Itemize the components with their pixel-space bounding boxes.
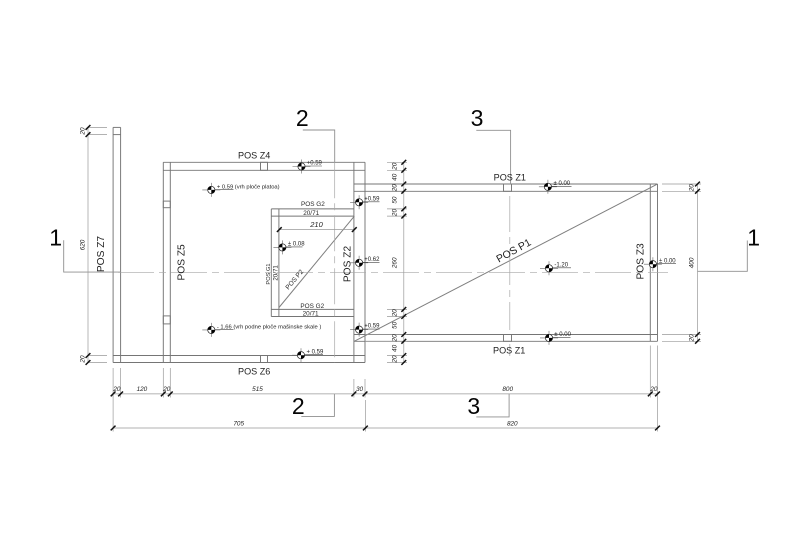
- svg-text:20: 20: [80, 355, 87, 364]
- svg-text:20: 20: [392, 209, 399, 218]
- svg-text:2: 2: [292, 393, 305, 419]
- svg-text:800: 800: [502, 386, 513, 393]
- svg-text:20: 20: [392, 334, 399, 343]
- svg-text:± 0.00: ± 0.00: [554, 181, 571, 187]
- svg-text:- 1.66 (vrh podne ploče mašins: - 1.66 (vrh podne ploče mašinske skale ): [217, 324, 321, 330]
- svg-text:± 0.08: ± 0.08: [288, 242, 305, 248]
- svg-text:20: 20: [162, 386, 171, 393]
- svg-text:POS G1: POS G1: [266, 263, 272, 284]
- svg-text:POS Z4: POS Z4: [238, 150, 270, 160]
- svg-text:50: 50: [392, 321, 399, 329]
- svg-text:POS G2: POS G2: [301, 201, 325, 208]
- svg-text:POS Z5: POS Z5: [177, 244, 188, 281]
- svg-text:POS Z7: POS Z7: [96, 236, 107, 273]
- svg-text:20: 20: [649, 386, 658, 393]
- svg-text:+0.59: +0.59: [307, 161, 323, 167]
- svg-text:210: 210: [309, 220, 323, 229]
- svg-text:POS Z2: POS Z2: [343, 246, 354, 283]
- svg-text:30: 30: [356, 386, 364, 393]
- svg-text:3: 3: [467, 393, 480, 419]
- svg-text:1: 1: [747, 225, 760, 251]
- svg-text:400: 400: [689, 257, 696, 268]
- svg-text:20: 20: [112, 386, 121, 393]
- svg-text:20/71: 20/71: [303, 210, 319, 217]
- svg-text:20: 20: [392, 162, 399, 171]
- svg-text:-1.20: -1.20: [554, 262, 568, 268]
- svg-text:515: 515: [252, 386, 263, 393]
- svg-text:40: 40: [392, 173, 399, 181]
- svg-text:+0.59: +0.59: [364, 196, 380, 202]
- svg-text:260: 260: [392, 257, 399, 269]
- svg-text:20/71: 20/71: [273, 265, 280, 281]
- svg-text:+0.59: +0.59: [364, 324, 380, 330]
- svg-text:20: 20: [392, 184, 399, 193]
- svg-text:+ 0.59 (vrh ploče platoa): + 0.59 (vrh ploče platoa): [217, 184, 280, 190]
- svg-text:POS Z1: POS Z1: [493, 345, 525, 355]
- svg-text:20: 20: [689, 334, 696, 343]
- svg-text:2: 2: [296, 105, 309, 131]
- svg-text:1: 1: [49, 224, 62, 250]
- svg-text:3: 3: [471, 105, 484, 131]
- svg-text:20: 20: [392, 309, 399, 318]
- svg-text:620: 620: [80, 239, 87, 250]
- svg-text:POS Z1: POS Z1: [494, 172, 526, 182]
- svg-text:± 0.00: ± 0.00: [554, 332, 571, 338]
- svg-text:20: 20: [80, 127, 87, 136]
- svg-text:40: 40: [392, 344, 399, 352]
- svg-text:+ 0.59: + 0.59: [307, 349, 325, 355]
- svg-text:± 0.00: ± 0.00: [659, 258, 676, 264]
- svg-text:+0.62: +0.62: [364, 257, 380, 263]
- svg-text:20: 20: [392, 355, 399, 364]
- svg-text:20/71: 20/71: [303, 311, 319, 318]
- svg-text:120: 120: [137, 386, 148, 393]
- svg-text:POS Z3: POS Z3: [636, 243, 647, 280]
- svg-text:POS Z6: POS Z6: [238, 366, 270, 376]
- svg-text:POS G2: POS G2: [300, 303, 324, 310]
- svg-text:705: 705: [233, 421, 244, 428]
- svg-text:50: 50: [392, 196, 399, 204]
- svg-text:820: 820: [507, 421, 518, 428]
- svg-text:20: 20: [689, 184, 696, 193]
